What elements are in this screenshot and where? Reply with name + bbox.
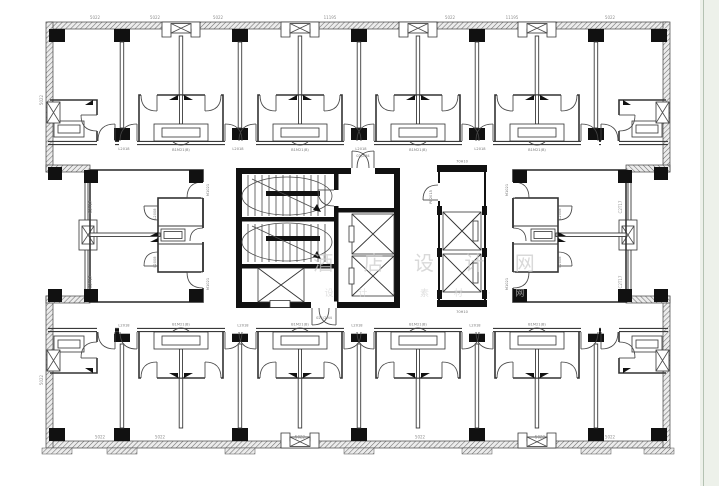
- dimension-label: 5022: [39, 374, 44, 385]
- door-tag: 021/2M4: [316, 316, 332, 320]
- elevator-shaft: [258, 268, 304, 308]
- door-tag: L2018: [469, 324, 481, 328]
- floor-plan-page: 5022 5022 5022 11195 5022 11195 5022 502…: [0, 0, 719, 486]
- vanity-tag: B1M21(B): [291, 323, 309, 327]
- door-tag: L2008: [558, 256, 562, 268]
- watermark-text: 酒 店 设 计 网: [313, 251, 546, 275]
- door-tag: L2008: [153, 256, 157, 268]
- vanity-tag: B1M21(B): [409, 148, 427, 152]
- dimension-label: C2T17: [88, 275, 93, 288]
- dimension-label: C2T17: [618, 275, 623, 288]
- door-tag: L2008: [153, 208, 157, 220]
- door-tag: L2018: [355, 147, 367, 151]
- vanity-tag: B1M21(B): [172, 323, 190, 327]
- door-tag: L2018: [118, 147, 130, 151]
- door-tag: L2018: [232, 147, 244, 151]
- dimension-label: 5022: [150, 15, 161, 20]
- floor-plan-drawing: 5022 5022 5022 11195 5022 11195 5022 502…: [0, 0, 719, 486]
- door-tag: 70H10: [456, 160, 469, 164]
- dimension-label: C2T17: [88, 200, 93, 213]
- dimension-label: 5022: [445, 15, 456, 20]
- dimension-label: 5022: [605, 435, 616, 440]
- dimension-label: 5022: [605, 15, 616, 20]
- dimension-label: 5022: [295, 435, 306, 440]
- door-tag: L2018: [237, 324, 249, 328]
- door-tag: L2018: [118, 324, 130, 328]
- vanity-tag: B1M21(B): [528, 148, 546, 152]
- vanity-tag: B1M21(B): [409, 323, 427, 327]
- side-panel: [700, 0, 719, 486]
- dimension-label: 5022: [95, 435, 106, 440]
- door-tag: L2008: [558, 208, 562, 220]
- dimension-label: 5022: [39, 94, 44, 105]
- side-panel-background: [700, 0, 719, 486]
- dimension-label: 5022: [155, 435, 166, 440]
- vanity-tag: B1M21(B): [172, 148, 190, 152]
- dimension-label: 5022: [535, 435, 546, 440]
- door-tag: PB2015: [429, 190, 433, 204]
- door-tag: L2018: [351, 324, 363, 328]
- dimension-label: 5022: [213, 15, 224, 20]
- dimension-label: C2T17: [618, 200, 623, 213]
- vanity-tag: B1M21(B): [291, 148, 309, 152]
- door-tag: M1021: [206, 184, 210, 196]
- dimension-label: 5022: [415, 435, 426, 440]
- dimension-label: 5022: [90, 15, 101, 20]
- door-tag: 70H10: [456, 310, 469, 314]
- door-tag: M1021: [505, 184, 509, 196]
- watermark-text: 设 计 · 素 材 · 网: [325, 287, 536, 299]
- door-tag: L2018: [474, 147, 486, 151]
- dimension-label: 11195: [324, 15, 337, 20]
- dimension-label: 11195: [506, 15, 519, 20]
- door-tag: M1021: [206, 278, 210, 290]
- vanity-tag: B1M21(B): [528, 323, 546, 327]
- door-tag: 02/2M4: [356, 154, 370, 158]
- elevator-shaft: [352, 214, 394, 254]
